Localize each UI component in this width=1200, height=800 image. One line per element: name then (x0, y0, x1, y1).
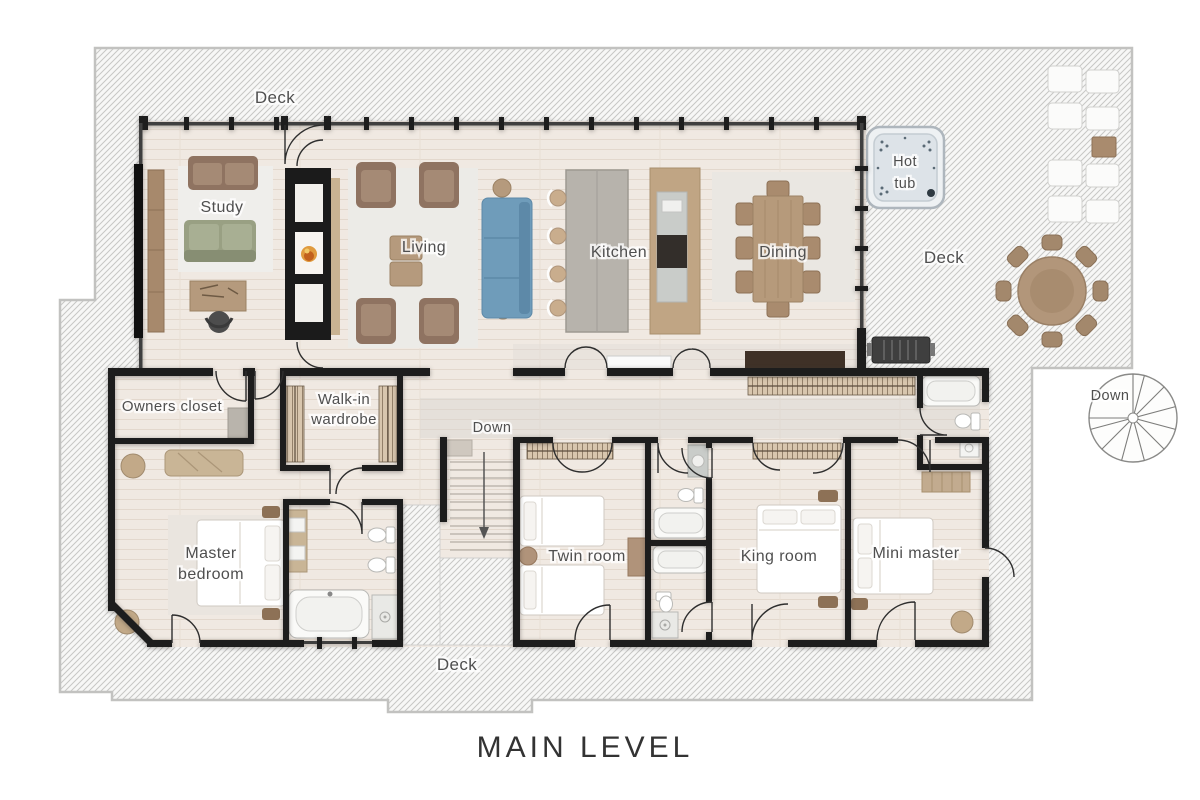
label-walk-in-1: Walk-in (318, 391, 370, 408)
label-living: Living (402, 239, 446, 256)
floor-plan-svg: Deck Study Living Kitchen Dining Hot tub… (0, 0, 1200, 800)
label-twin-room: Twin room (548, 548, 625, 565)
label-walk-in-2: wardrobe (310, 411, 377, 428)
label-deck-top: Deck (255, 88, 295, 107)
label-king-room: King room (741, 548, 818, 565)
label-master-2: bedroom (178, 566, 244, 583)
deck-side-table (1092, 137, 1116, 157)
label-hot-tub-2: tub (894, 176, 915, 192)
bbq-grill (867, 337, 935, 363)
label-study: Study (201, 199, 244, 216)
page-title: MAIN LEVEL (477, 731, 694, 764)
label-master-1: Master (185, 545, 237, 562)
label-dining: Dining (759, 244, 807, 261)
floor-plan-page: Deck Study Living Kitchen Dining Hot tub… (0, 0, 1200, 800)
label-kitchen: Kitchen (591, 244, 647, 261)
fireplace-flame (301, 246, 317, 262)
label-down-spiral: Down (1091, 388, 1130, 404)
sideboard (745, 351, 845, 368)
label-owners-closet: Owners closet (122, 398, 223, 415)
label-hot-tub-1: Hot (893, 154, 917, 170)
blue-sofa (482, 198, 532, 318)
label-down-stairs: Down (473, 420, 512, 436)
label-mini-master: Mini master (872, 545, 959, 562)
label-deck-right: Deck (924, 248, 964, 267)
hall-closet (748, 377, 915, 395)
kitchen-counter (650, 168, 700, 334)
label-deck-bottom: Deck (437, 655, 477, 674)
study-furniture (148, 156, 258, 333)
